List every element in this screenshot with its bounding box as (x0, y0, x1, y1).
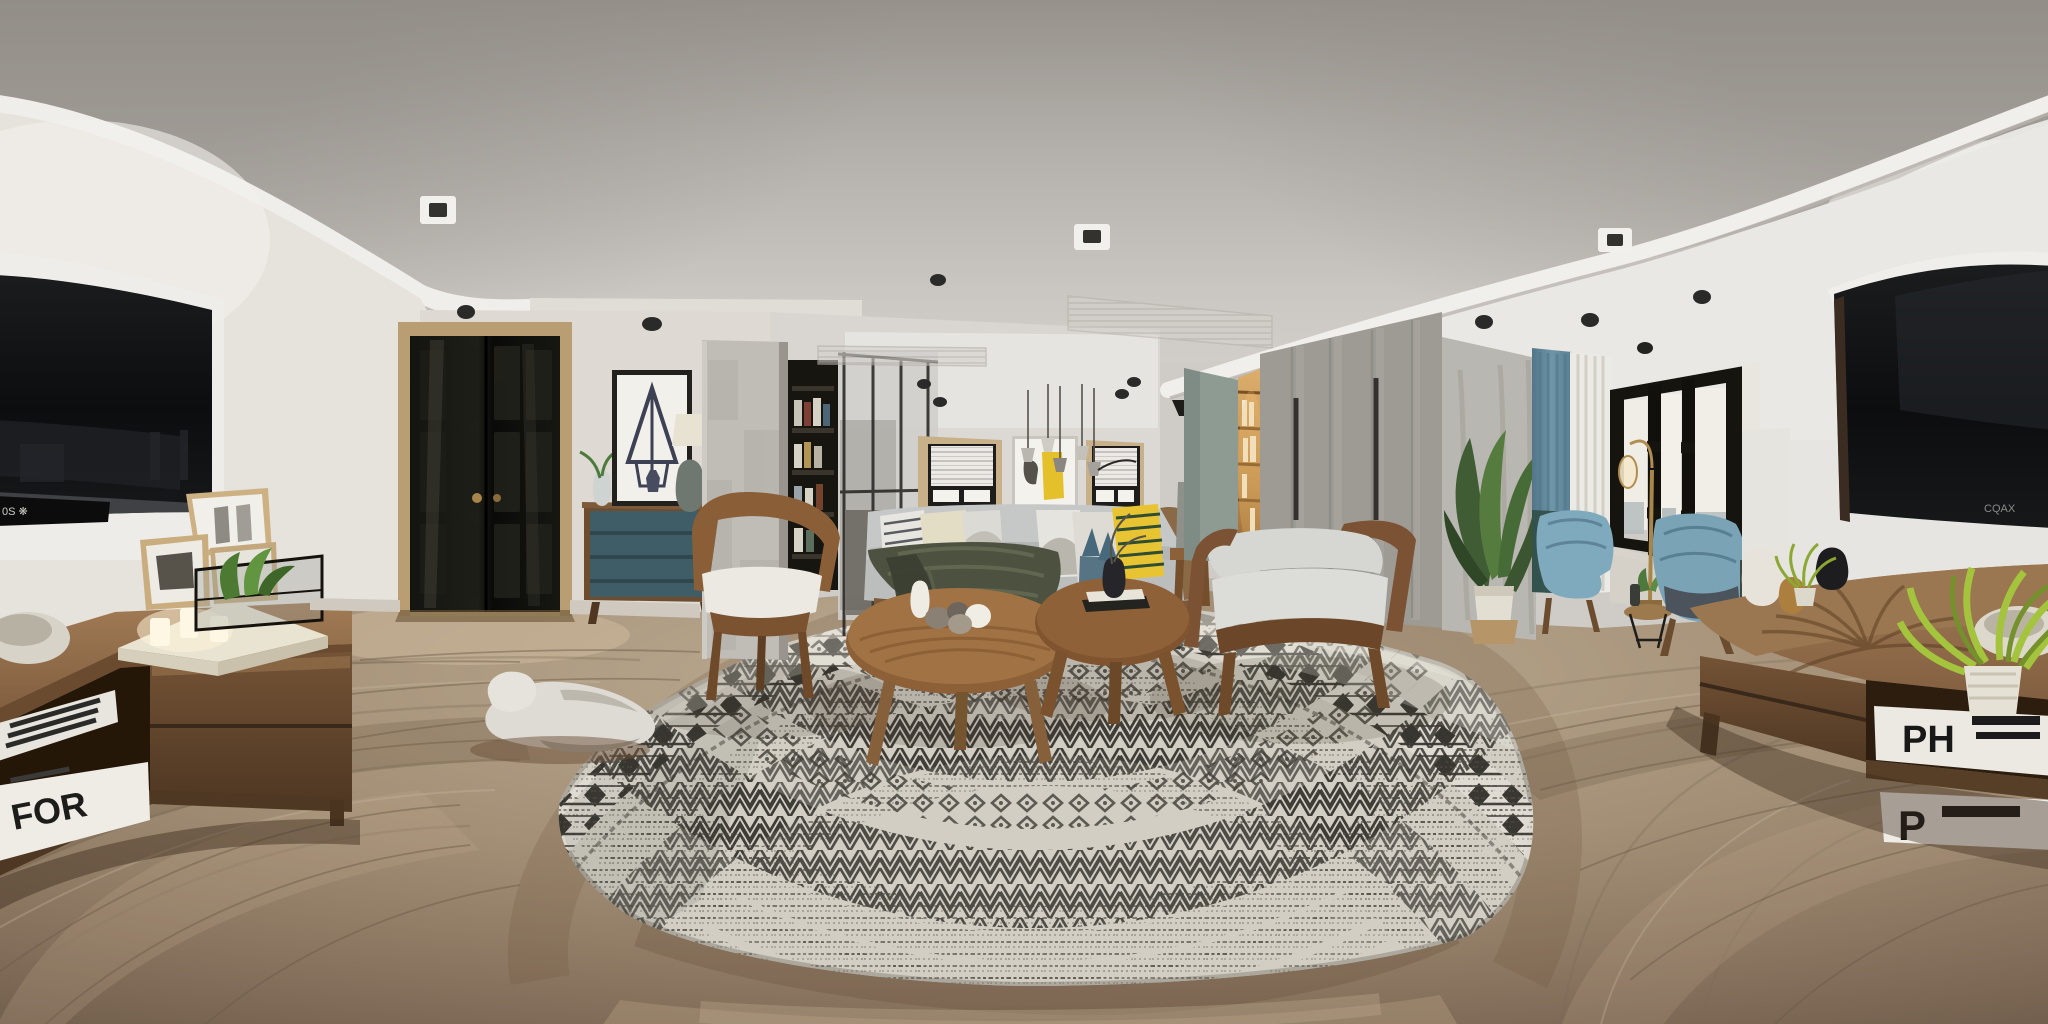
svg-text:0S ❋: 0S ❋ (2, 506, 28, 518)
svg-text:PH: PH (1902, 719, 1955, 761)
svg-text:CQAX: CQAX (1984, 503, 2016, 515)
